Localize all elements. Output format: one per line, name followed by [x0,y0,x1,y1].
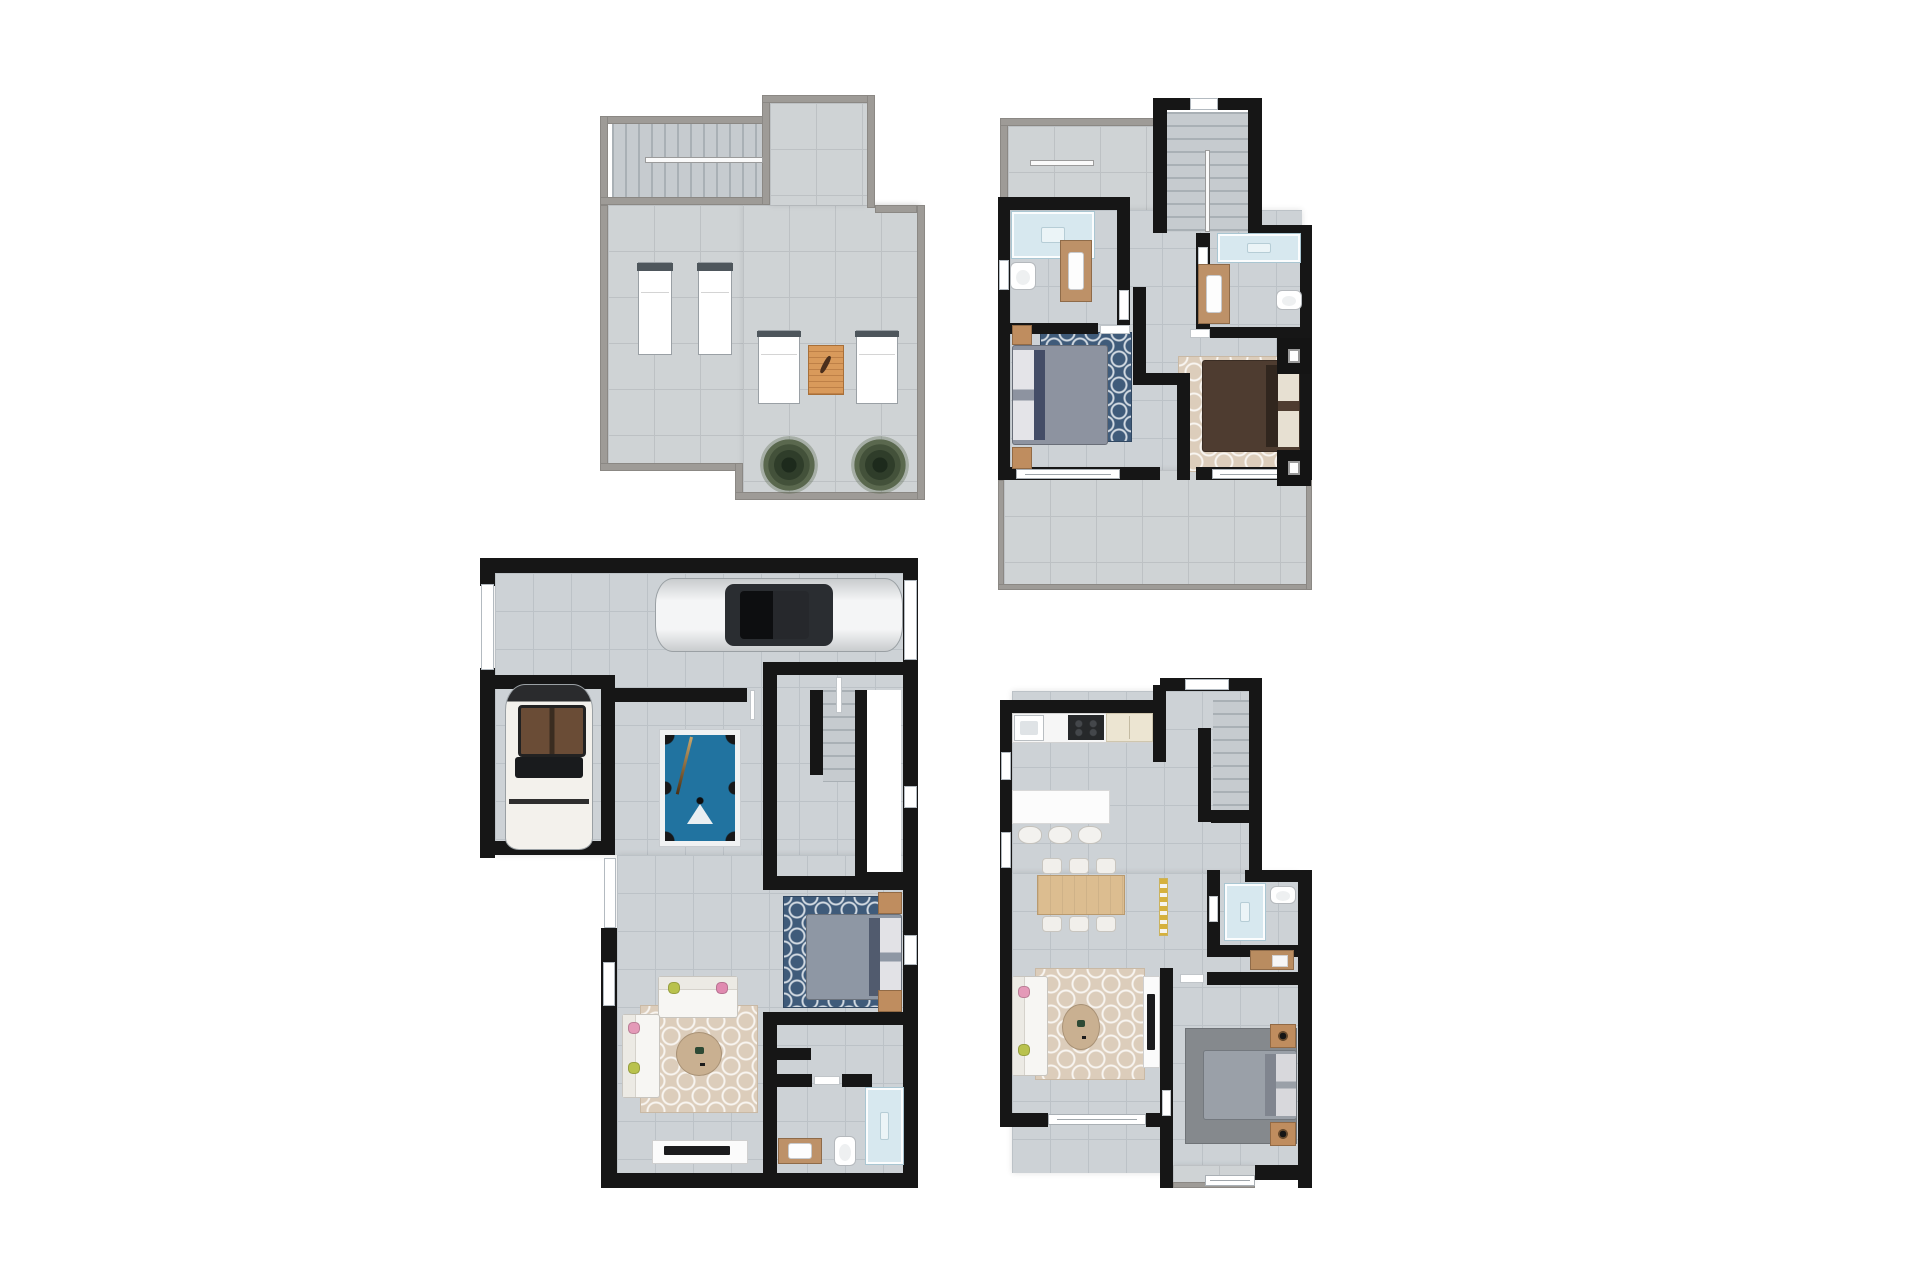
dresser [1250,950,1294,970]
bar-stool [1018,826,1042,844]
cushion [1018,1044,1030,1056]
shower [1225,884,1265,940]
toilet [1270,886,1296,904]
kitchen-island [1012,790,1110,824]
wall [1000,1113,1048,1127]
wall [1298,870,1312,1188]
nightstand-lamp [1270,1122,1296,1146]
living-slider [1048,1114,1146,1125]
dining-chair [1096,858,1116,874]
dining-chair [1042,916,1062,932]
bedroom4-slider [1205,1175,1255,1186]
open-door-leaf [1180,974,1204,983]
wall [1160,968,1173,1188]
wall [1153,713,1166,762]
wall [1211,810,1251,823]
dining-chair [1069,916,1089,932]
wall [1198,728,1211,822]
bar-stool [1078,826,1102,844]
plan-ground-floor [0,0,1920,1280]
tv [1147,994,1155,1050]
coffee-table [1062,1004,1100,1050]
nightstand-lamp [1270,1024,1296,1048]
wall [1207,972,1300,985]
fridge [1106,713,1153,742]
dining-chair [1042,858,1062,874]
floorplan-canvas [0,0,1920,1280]
dining-chair [1069,858,1089,874]
kitchen-window [1001,752,1011,780]
stair-window [1185,679,1229,690]
yellow-runner [1159,878,1168,936]
wall [1249,678,1262,870]
cooktop [1068,715,1104,740]
double-bed [1203,1050,1297,1120]
bar-stool [1048,826,1072,844]
dining-chair [1096,916,1116,932]
ground-stairs [1213,700,1250,815]
dining-table [1037,875,1125,915]
wall [1000,700,1153,713]
kitchen-window [1001,832,1011,868]
kitchen-sink [1014,715,1044,741]
bath4-door [1209,896,1218,922]
bedroom4-door [1162,1090,1171,1116]
cushion [1018,986,1030,998]
wall [1255,1165,1312,1180]
